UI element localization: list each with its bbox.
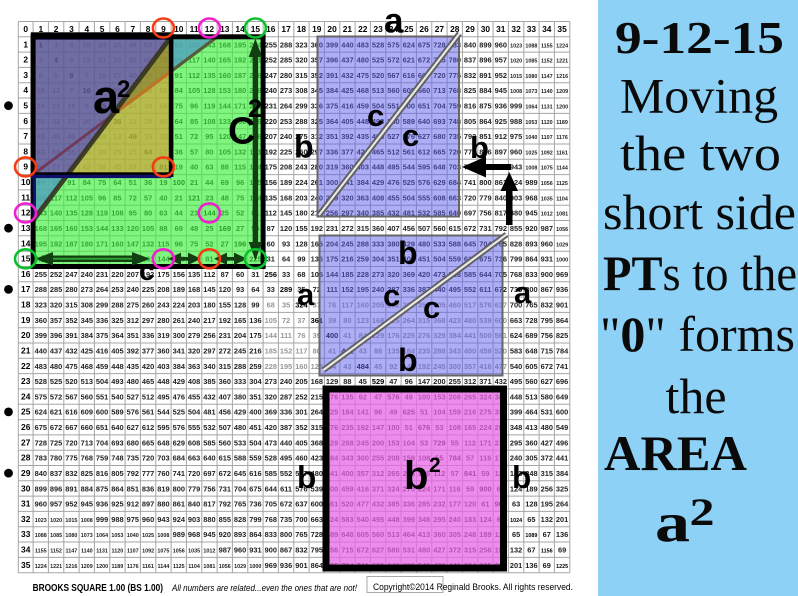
svg-text:247: 247 [265,71,277,80]
svg-text:867: 867 [280,546,292,555]
svg-text:333: 333 [234,377,246,386]
svg-text:936: 936 [556,285,568,294]
svg-text:952: 952 [65,500,77,509]
svg-text:629: 629 [173,438,185,447]
svg-text:340: 340 [203,362,215,371]
svg-text:64: 64 [282,255,291,264]
svg-text:a: a [514,275,532,310]
svg-text:132: 132 [541,515,553,524]
svg-text:912: 912 [495,132,507,141]
svg-text:600: 600 [311,500,323,509]
svg-text:1120: 1120 [112,549,124,555]
svg-text:440: 440 [35,347,47,356]
svg-text:884: 884 [81,484,94,493]
svg-text:30: 30 [21,483,31,493]
svg-text:448: 448 [510,392,522,401]
svg-text:637: 637 [295,500,307,509]
svg-text:c: c [423,290,440,325]
svg-text:the two: the two [620,125,781,181]
svg-text:616: 616 [249,469,261,478]
svg-text:1209: 1209 [81,564,93,570]
svg-text:1080: 1080 [525,74,537,80]
svg-text:792: 792 [127,469,139,478]
svg-text:493: 493 [111,377,123,386]
svg-text:864: 864 [479,117,492,126]
svg-text:320: 320 [295,56,307,65]
svg-text:960: 960 [35,500,47,509]
svg-text:512: 512 [142,392,154,401]
svg-text:875: 875 [96,484,108,493]
svg-text:945: 945 [203,530,215,539]
svg-text:989: 989 [525,178,537,187]
svg-text:559: 559 [249,454,261,463]
svg-text:440: 440 [280,438,292,447]
svg-text:208: 208 [280,163,292,172]
svg-text:217: 217 [203,316,215,325]
svg-text:551: 551 [96,392,108,401]
svg-text:520: 520 [65,377,77,386]
svg-text:768: 768 [81,454,93,463]
svg-text:880: 880 [157,500,169,509]
svg-text:588: 588 [234,454,246,463]
svg-text:1012: 1012 [541,212,553,218]
svg-text:336: 336 [280,408,292,417]
svg-text:893: 893 [234,530,246,539]
svg-text:33: 33 [282,270,290,279]
svg-text:93: 93 [236,285,244,294]
svg-text:1000: 1000 [556,258,568,264]
svg-text:575: 575 [35,392,47,401]
svg-text:900: 900 [541,270,553,279]
svg-text:1221: 1221 [50,564,62,570]
svg-text:1216: 1216 [556,74,568,80]
svg-text:295: 295 [510,438,522,447]
svg-text:1023: 1023 [510,43,522,49]
svg-text:960: 960 [510,147,522,156]
svg-text:555: 555 [188,423,200,432]
svg-text:264: 264 [96,285,109,294]
svg-text:165: 165 [234,316,246,325]
svg-text:407: 407 [219,392,231,401]
svg-text:960: 960 [541,239,553,248]
svg-text:112: 112 [265,209,277,218]
svg-text:a: a [297,277,315,312]
svg-text:1131: 1131 [96,549,108,555]
svg-text:728: 728 [35,438,47,447]
svg-text:600: 600 [556,408,568,417]
svg-text:308: 308 [295,86,307,95]
svg-text:988: 988 [510,117,522,126]
svg-text:315: 315 [311,423,323,432]
svg-text:456: 456 [403,224,415,233]
svg-text:15: 15 [251,24,261,34]
svg-text:319: 319 [157,331,169,340]
svg-text:504: 504 [188,408,201,417]
svg-text:368: 368 [311,438,323,447]
svg-text:795: 795 [541,316,553,325]
svg-text:28: 28 [450,24,460,34]
svg-text:225: 225 [142,285,154,294]
svg-text:37: 37 [297,316,305,325]
svg-text:988: 988 [111,515,123,524]
svg-text:60: 60 [267,239,275,248]
svg-text:360: 360 [157,347,169,356]
svg-text:272: 272 [219,347,231,356]
svg-text:34: 34 [21,545,31,555]
svg-text:1025: 1025 [525,150,537,156]
svg-text:580: 580 [541,392,553,401]
svg-text:403: 403 [157,362,169,371]
svg-text:392: 392 [127,347,139,356]
svg-text:325: 325 [111,316,123,325]
svg-text:896: 896 [479,56,491,65]
svg-text:387: 387 [280,423,292,432]
svg-text:1089: 1089 [525,533,537,539]
svg-text:1131: 1131 [541,105,553,111]
svg-text:1064: 1064 [96,533,108,539]
svg-text:25: 25 [404,24,414,34]
svg-text:775: 775 [65,454,77,463]
svg-text:341: 341 [173,347,185,356]
svg-text:67: 67 [543,530,551,539]
svg-text:432: 432 [65,347,77,356]
svg-text:756: 756 [479,209,491,218]
svg-text:35: 35 [282,301,290,310]
svg-text:901: 901 [556,301,568,310]
svg-text:731: 731 [479,224,491,233]
svg-text:9: 9 [23,162,28,172]
svg-text:828: 828 [510,239,522,248]
svg-text:735: 735 [280,515,292,524]
svg-text:496: 496 [556,438,568,447]
svg-text:256: 256 [203,331,215,340]
svg-text:800: 800 [479,178,491,187]
svg-text:323: 323 [35,301,47,310]
svg-text:999: 999 [510,102,522,111]
svg-text:627: 627 [541,377,553,386]
svg-text:180: 180 [295,209,307,218]
svg-text:936: 936 [96,500,108,509]
svg-text:696: 696 [556,377,568,386]
svg-text:369: 369 [265,408,277,417]
svg-text:21: 21 [343,24,353,34]
svg-text:432: 432 [203,392,215,401]
svg-text:880: 880 [203,515,215,524]
svg-text:192: 192 [265,147,277,156]
svg-text:684: 684 [173,454,186,463]
svg-text:195: 195 [541,500,553,509]
svg-text:375: 375 [96,331,108,340]
svg-text:35: 35 [557,24,567,34]
svg-text:b: b [512,459,531,495]
svg-text:288: 288 [234,362,246,371]
svg-text:a: a [384,2,404,41]
svg-text:315: 315 [65,301,77,310]
svg-text:833: 833 [265,530,277,539]
svg-text:175: 175 [249,331,261,340]
svg-text:231: 231 [96,270,108,279]
svg-text:741: 741 [173,469,185,478]
svg-text:87: 87 [221,270,229,279]
svg-text:299: 299 [96,301,108,310]
svg-text:672: 672 [219,469,231,478]
svg-text:195: 195 [280,362,292,371]
svg-text:AREA: AREA [604,425,747,481]
svg-text:832: 832 [541,301,553,310]
svg-text:615: 615 [219,454,231,463]
svg-text:645: 645 [234,469,246,478]
svg-text:561: 561 [142,408,154,417]
svg-text:272: 272 [341,224,353,233]
svg-text:741: 741 [464,178,476,187]
svg-text:945: 945 [495,86,507,95]
svg-text:14: 14 [21,238,31,248]
svg-text:703: 703 [157,454,169,463]
svg-text:31: 31 [496,24,506,34]
svg-text:105: 105 [265,316,277,325]
svg-text:960: 960 [234,546,246,555]
svg-text:459: 459 [96,362,108,371]
svg-text:240: 240 [280,132,292,141]
svg-text:480: 480 [50,362,62,371]
svg-text:1152: 1152 [50,549,62,555]
svg-text:a: a [655,492,690,553]
svg-text:1224: 1224 [556,43,568,49]
svg-text:605: 605 [525,362,537,371]
svg-text:704: 704 [234,484,247,493]
svg-text:1147: 1147 [541,74,553,80]
svg-text:864: 864 [249,530,262,539]
svg-text:16: 16 [266,24,276,34]
svg-text:969: 969 [265,561,277,570]
svg-text:207: 207 [127,270,139,279]
svg-text:1088: 1088 [525,43,537,49]
svg-text:1008: 1008 [157,533,169,539]
svg-text:1064: 1064 [525,105,537,111]
svg-text:464: 464 [525,408,538,417]
svg-text:1140: 1140 [81,549,93,555]
svg-text:713: 713 [81,438,93,447]
svg-text:301: 301 [295,408,307,417]
svg-text:29: 29 [465,24,475,34]
svg-text:945: 945 [81,500,93,509]
svg-text:680: 680 [127,438,139,447]
svg-text:20: 20 [327,24,337,34]
svg-text:736: 736 [249,500,261,509]
svg-text:68: 68 [267,301,275,310]
svg-text:300: 300 [173,331,185,340]
svg-text:391: 391 [65,331,77,340]
svg-text:825: 825 [556,331,568,340]
svg-text:357: 357 [50,316,62,325]
svg-text:240: 240 [127,285,139,294]
svg-text:11: 11 [190,24,199,34]
svg-text:33: 33 [267,285,275,294]
svg-text:1144: 1144 [556,166,568,172]
svg-text:19: 19 [312,24,322,34]
svg-text:260: 260 [142,301,154,310]
svg-text:"0" forms: "0" forms [600,306,795,362]
svg-text:704: 704 [96,438,109,447]
svg-text:1040: 1040 [127,533,139,539]
svg-text:549: 549 [556,423,568,432]
svg-text:273: 273 [265,377,277,386]
svg-text:69: 69 [558,546,566,555]
svg-text:2: 2 [117,76,130,103]
svg-text:1200: 1200 [96,564,108,570]
svg-text:264: 264 [556,500,569,509]
svg-text:649: 649 [556,392,568,401]
svg-text:1024: 1024 [510,518,522,524]
svg-text:1176: 1176 [556,135,568,141]
svg-text:1104: 1104 [188,564,200,570]
svg-text:315: 315 [295,71,307,80]
svg-text:288: 288 [35,285,47,294]
svg-text:609: 609 [81,408,93,417]
svg-text:87: 87 [267,224,275,233]
svg-text:560: 560 [81,392,93,401]
svg-text:864: 864 [311,561,324,570]
svg-text:899: 899 [479,40,491,49]
svg-text:19: 19 [21,315,31,325]
svg-text:945: 945 [525,209,537,218]
svg-text:0: 0 [23,24,28,34]
svg-text:144: 144 [265,331,278,340]
svg-text:160: 160 [295,362,307,371]
svg-text:912: 912 [127,500,139,509]
svg-text:201: 201 [510,561,522,570]
svg-text:255: 255 [35,270,47,279]
svg-text:896: 896 [50,484,62,493]
svg-text:756: 756 [541,331,553,340]
svg-text:1008: 1008 [81,518,93,524]
svg-text:640: 640 [203,454,215,463]
svg-text:840: 840 [35,469,47,478]
svg-text:560: 560 [525,377,537,386]
svg-text:836: 836 [142,484,154,493]
svg-text:360: 360 [219,377,231,386]
svg-text:384: 384 [556,469,569,478]
svg-text:4: 4 [23,85,28,95]
svg-text:840: 840 [188,500,200,509]
svg-text:861: 861 [173,500,185,509]
svg-text:128: 128 [525,500,537,509]
svg-text:22: 22 [21,361,31,371]
svg-text:672: 672 [50,423,62,432]
svg-text:35: 35 [21,560,31,570]
svg-text:225: 225 [280,147,292,156]
svg-text:720: 720 [65,438,77,447]
svg-text:c: c [402,118,419,153]
svg-text:189: 189 [173,285,185,294]
svg-text:931: 931 [541,255,553,264]
svg-text:612: 612 [142,423,154,432]
svg-text:1008: 1008 [525,166,537,172]
svg-text:33: 33 [527,24,537,34]
svg-text:24: 24 [21,391,31,401]
svg-text:825: 825 [464,86,476,95]
svg-text:1155: 1155 [35,549,47,555]
svg-text:111: 111 [280,331,292,340]
svg-text:481: 481 [203,408,215,417]
svg-text:901: 901 [295,561,307,570]
svg-text:28: 28 [21,453,31,463]
svg-text:69: 69 [543,561,551,570]
svg-text:112: 112 [203,270,215,279]
svg-text:22: 22 [358,24,368,34]
svg-text:819: 819 [157,484,169,493]
svg-text:528: 528 [35,377,47,386]
svg-text:32: 32 [21,514,31,524]
svg-text:short side: short side [603,184,796,240]
svg-text:663: 663 [311,515,323,524]
svg-text:816: 816 [96,469,108,478]
svg-text:663: 663 [510,316,522,325]
svg-text:12: 12 [205,24,215,34]
svg-text:665: 665 [142,438,154,447]
svg-text:168: 168 [280,193,292,202]
svg-text:64: 64 [251,285,260,294]
svg-text:13: 13 [21,223,31,233]
svg-text:PTs to the: PTs to the [603,245,797,301]
svg-text:900: 900 [265,546,277,555]
svg-text:779: 779 [188,484,200,493]
svg-text:451: 451 [249,423,261,432]
svg-text:448: 448 [157,377,169,386]
svg-text:128: 128 [295,239,307,248]
svg-text:583: 583 [510,347,522,356]
svg-text:504: 504 [249,438,262,447]
svg-text:585: 585 [265,469,277,478]
svg-text:455: 455 [188,392,200,401]
svg-text:27: 27 [21,437,31,447]
svg-text:1104: 1104 [556,196,568,202]
svg-text:1035: 1035 [188,549,200,555]
svg-text:529: 529 [372,377,384,386]
svg-text:1008: 1008 [510,89,522,95]
svg-text:697: 697 [464,209,476,218]
svg-text:16: 16 [21,269,31,279]
svg-text:99: 99 [251,301,259,310]
svg-text:320: 320 [188,347,200,356]
svg-text:899: 899 [35,484,47,493]
svg-text:864: 864 [556,316,569,325]
svg-text:252: 252 [265,56,277,65]
svg-text:663: 663 [188,454,200,463]
svg-text:891: 891 [65,484,77,493]
svg-text:2: 2 [23,55,28,65]
svg-text:924: 924 [173,515,186,524]
svg-text:29: 29 [21,468,31,478]
svg-text:128: 128 [234,301,246,310]
svg-text:96: 96 [405,377,413,386]
svg-text:27: 27 [435,24,445,34]
svg-text:205: 205 [295,377,307,386]
svg-text:65: 65 [527,515,535,524]
svg-text:532: 532 [203,423,215,432]
svg-text:480: 480 [234,423,246,432]
svg-text:1216: 1216 [65,564,77,570]
svg-text:297: 297 [142,316,154,325]
svg-text:475: 475 [65,362,77,371]
svg-text:371: 371 [479,377,491,386]
svg-text:21: 21 [21,346,31,356]
svg-text:288: 288 [280,40,292,49]
svg-text:351: 351 [249,392,261,401]
svg-text:17: 17 [281,24,291,34]
svg-text:1015: 1015 [65,518,77,524]
svg-text:1140: 1140 [541,89,553,95]
